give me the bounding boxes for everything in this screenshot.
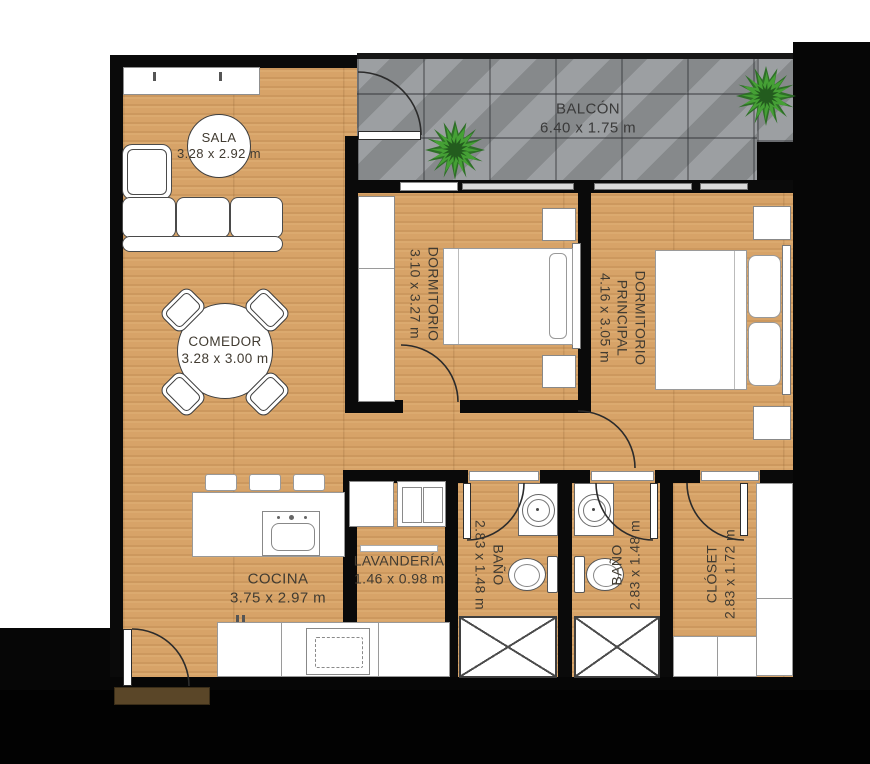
room-dims: 4.16 x 3.05 m <box>596 271 614 366</box>
room-label-dormitorio: DORMITORIO 3.10 x 3.27 m <box>407 247 442 342</box>
room-name: BAÑO <box>489 520 507 610</box>
bed-headboard <box>572 243 581 349</box>
wardrobe <box>358 196 395 402</box>
room-dims: 2.83 x 1.48 m <box>472 520 490 610</box>
closet-shelf-bottom <box>673 636 757 677</box>
sofa-cushion <box>176 197 230 238</box>
bed-mattress <box>655 250 747 390</box>
bathroom1-door-leaf <box>463 483 471 539</box>
bathroom1-vanity <box>518 483 558 536</box>
room-dims: 1.46 x 0.98 m <box>354 570 445 588</box>
closet-threshold <box>701 471 759 481</box>
counter-faucet-icon <box>242 615 245 622</box>
counter-faucet-icon <box>236 615 239 622</box>
shower <box>459 616 557 678</box>
room-name: PRINCIPAL <box>613 271 631 366</box>
bathroom2-threshold <box>591 471 654 481</box>
room-name: SALA <box>177 130 261 146</box>
bathroom2-door-leaf <box>650 483 658 539</box>
room-dims: 3.28 x 3.00 m <box>182 351 269 368</box>
wall-dormitorio-bottom-right <box>460 400 591 413</box>
sink-icon <box>578 494 611 527</box>
room-name: LAVANDERÍA <box>354 553 445 571</box>
room-dims: 3.10 x 3.27 m <box>407 247 425 342</box>
block-right-band <box>793 42 870 764</box>
room-name: CLÓSET <box>704 529 722 619</box>
room-dims: 6.40 x 1.75 m <box>540 119 636 138</box>
room-name: DORMITORIO <box>631 271 649 366</box>
room-label-dormitorio-principal: DORMITORIO PRINCIPAL 4.16 x 3.05 m <box>596 271 649 366</box>
wall-wet-top-d <box>760 470 793 483</box>
wall-bath-divider <box>558 470 572 688</box>
bed-headboard <box>782 245 791 395</box>
wall-bath2-closet <box>660 470 673 688</box>
dryer-cabinet <box>397 481 446 527</box>
room-label-balcon: BALCÓN 6.40 x 1.75 m <box>540 100 636 138</box>
nightstand <box>542 208 576 241</box>
room-name: BAÑO <box>609 520 627 610</box>
room-label-cocina: COCINA 3.75 x 2.97 m <box>230 570 326 608</box>
bed-pillow <box>549 253 567 339</box>
balcony-door-leaf <box>358 131 421 140</box>
room-dims: 3.28 x 2.92 m <box>177 146 261 162</box>
room-name: DORMITORIO <box>424 247 442 342</box>
entry-mat <box>114 687 210 705</box>
nightstand <box>753 406 791 440</box>
window-principal-right <box>700 183 748 190</box>
bar-stool <box>249 474 281 491</box>
room-dims: 2.83 x 1.48 m <box>626 520 644 610</box>
wall-fill-right-of-balcony <box>757 142 795 183</box>
closet-shelf-right <box>756 483 793 676</box>
console-handle <box>153 72 156 81</box>
wall-outer-left <box>110 55 123 690</box>
nightstand <box>542 355 576 388</box>
sofa-front-lip <box>122 236 283 252</box>
sink-icon <box>522 494 555 527</box>
laundry-shelf <box>360 545 438 552</box>
room-name: BALCÓN <box>540 100 636 119</box>
bed-pillow <box>748 255 781 318</box>
room-label-comedor: COMEDOR 3.28 x 3.00 m <box>182 334 269 368</box>
washer <box>349 481 394 527</box>
tv-console <box>123 67 260 95</box>
room-label-closet: CLÓSET 2.83 x 1.72 m <box>704 529 739 619</box>
room-label-bano-2: BAÑO 2.83 x 1.48 m <box>609 520 644 610</box>
room-label-lavanderia: LAVANDERÍA 1.46 x 0.98 m <box>354 553 445 588</box>
island-sink <box>262 511 320 556</box>
stove <box>306 628 370 675</box>
room-dims: 2.83 x 1.72 m <box>721 529 739 619</box>
room-name: COCINA <box>230 570 326 589</box>
entry-door-leaf <box>123 629 132 686</box>
shower <box>574 616 660 678</box>
sofa-cushion <box>230 197 283 238</box>
nightstand <box>753 206 791 240</box>
closet-door-leaf <box>740 483 748 536</box>
window-principal-left <box>594 183 692 190</box>
window-dormitorio <box>462 183 574 190</box>
room-dims: 3.75 x 2.97 m <box>230 589 326 608</box>
faucet-icon <box>289 515 294 520</box>
plant-icon <box>425 120 485 180</box>
balcony-door-threshold <box>400 182 458 191</box>
bar-stool <box>293 474 325 491</box>
room-name: COMEDOR <box>182 334 269 351</box>
console-handle <box>219 72 222 81</box>
floorplan: SALA 3.28 x 2.92 m BALCÓN 6.40 x 1.75 m … <box>0 0 870 764</box>
bed-pillow <box>748 322 781 386</box>
room-label-sala: SALA 3.28 x 2.92 m <box>177 130 261 163</box>
wall-sala-dormitorio <box>345 136 358 413</box>
bathroom1-threshold <box>469 471 539 481</box>
plant-icon <box>736 66 796 126</box>
sofa-cushion <box>122 197 176 238</box>
sofa-corner-seat <box>122 144 172 200</box>
balcony-top-edge <box>357 53 793 59</box>
room-label-bano-1: BAÑO 2.83 x 1.48 m <box>472 520 507 610</box>
toilet <box>508 556 558 593</box>
bar-stool <box>205 474 237 491</box>
